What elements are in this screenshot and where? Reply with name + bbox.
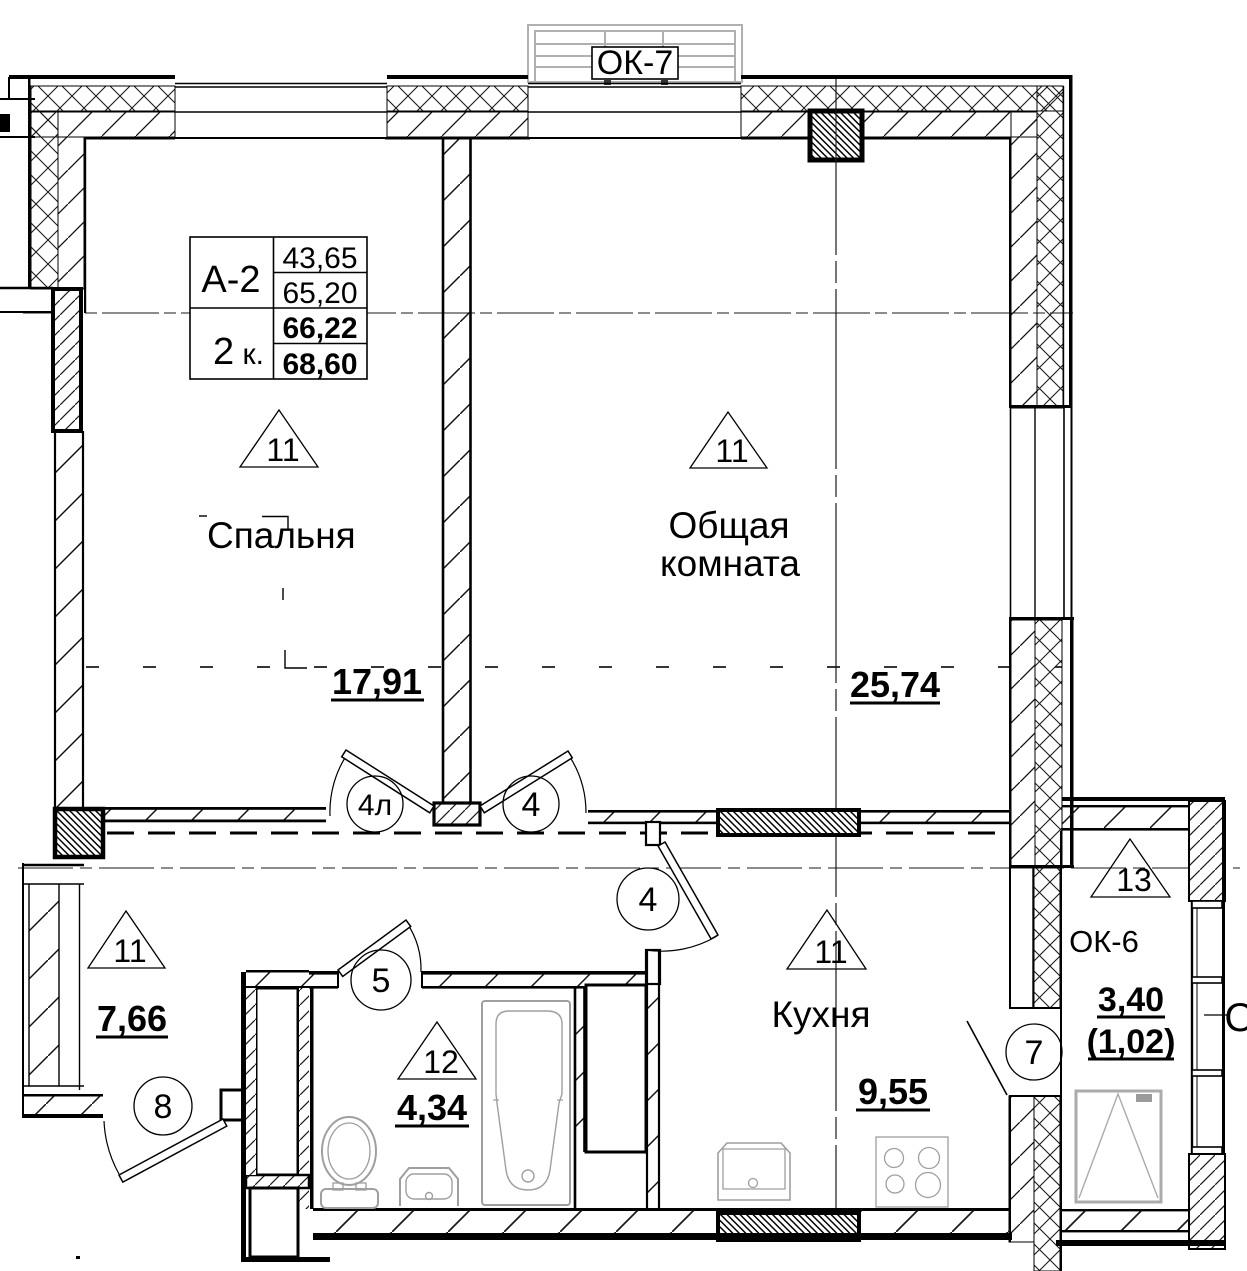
svg-text:43,65: 43,65 <box>282 242 357 275</box>
svg-text:3,40: 3,40 <box>1098 981 1164 1019</box>
svg-text:8: 8 <box>154 1088 173 1126</box>
svg-text:2 к.: 2 к. <box>213 331 264 373</box>
svg-text:68,60: 68,60 <box>282 348 357 381</box>
svg-text:25,74: 25,74 <box>850 664 940 705</box>
svg-text:66,22: 66,22 <box>282 312 357 345</box>
svg-text:(1,02): (1,02) <box>1087 1023 1176 1061</box>
svg-text:12: 12 <box>423 1044 459 1080</box>
svg-text:65,20: 65,20 <box>282 277 357 310</box>
svg-text:О: О <box>1224 996 1247 1040</box>
svg-text:А-2: А-2 <box>201 259 260 301</box>
svg-text:ОК-6: ОК-6 <box>1069 924 1139 959</box>
svg-text:11: 11 <box>266 432 299 468</box>
svg-text:4: 4 <box>639 881 658 919</box>
svg-text:комната: комната <box>660 543 800 584</box>
svg-text:17,91: 17,91 <box>332 661 422 702</box>
svg-text:4,34: 4,34 <box>397 1087 467 1128</box>
svg-text:Кухня: Кухня <box>771 994 870 1035</box>
svg-text:4л: 4л <box>358 789 392 822</box>
svg-text:11: 11 <box>113 933 146 969</box>
svg-text:7: 7 <box>1025 1034 1044 1072</box>
svg-text:7,66: 7,66 <box>97 998 167 1039</box>
svg-text:4: 4 <box>522 786 541 824</box>
svg-text:9,55: 9,55 <box>858 1071 928 1112</box>
svg-text:13: 13 <box>1116 862 1152 898</box>
svg-text:11: 11 <box>715 433 748 469</box>
svg-text:Спальня: Спальня <box>207 515 356 556</box>
svg-text:ОК-7: ОК-7 <box>597 44 673 82</box>
svg-text:5: 5 <box>372 962 391 1000</box>
svg-text:11: 11 <box>814 934 847 970</box>
svg-text:Общая: Общая <box>668 505 789 546</box>
